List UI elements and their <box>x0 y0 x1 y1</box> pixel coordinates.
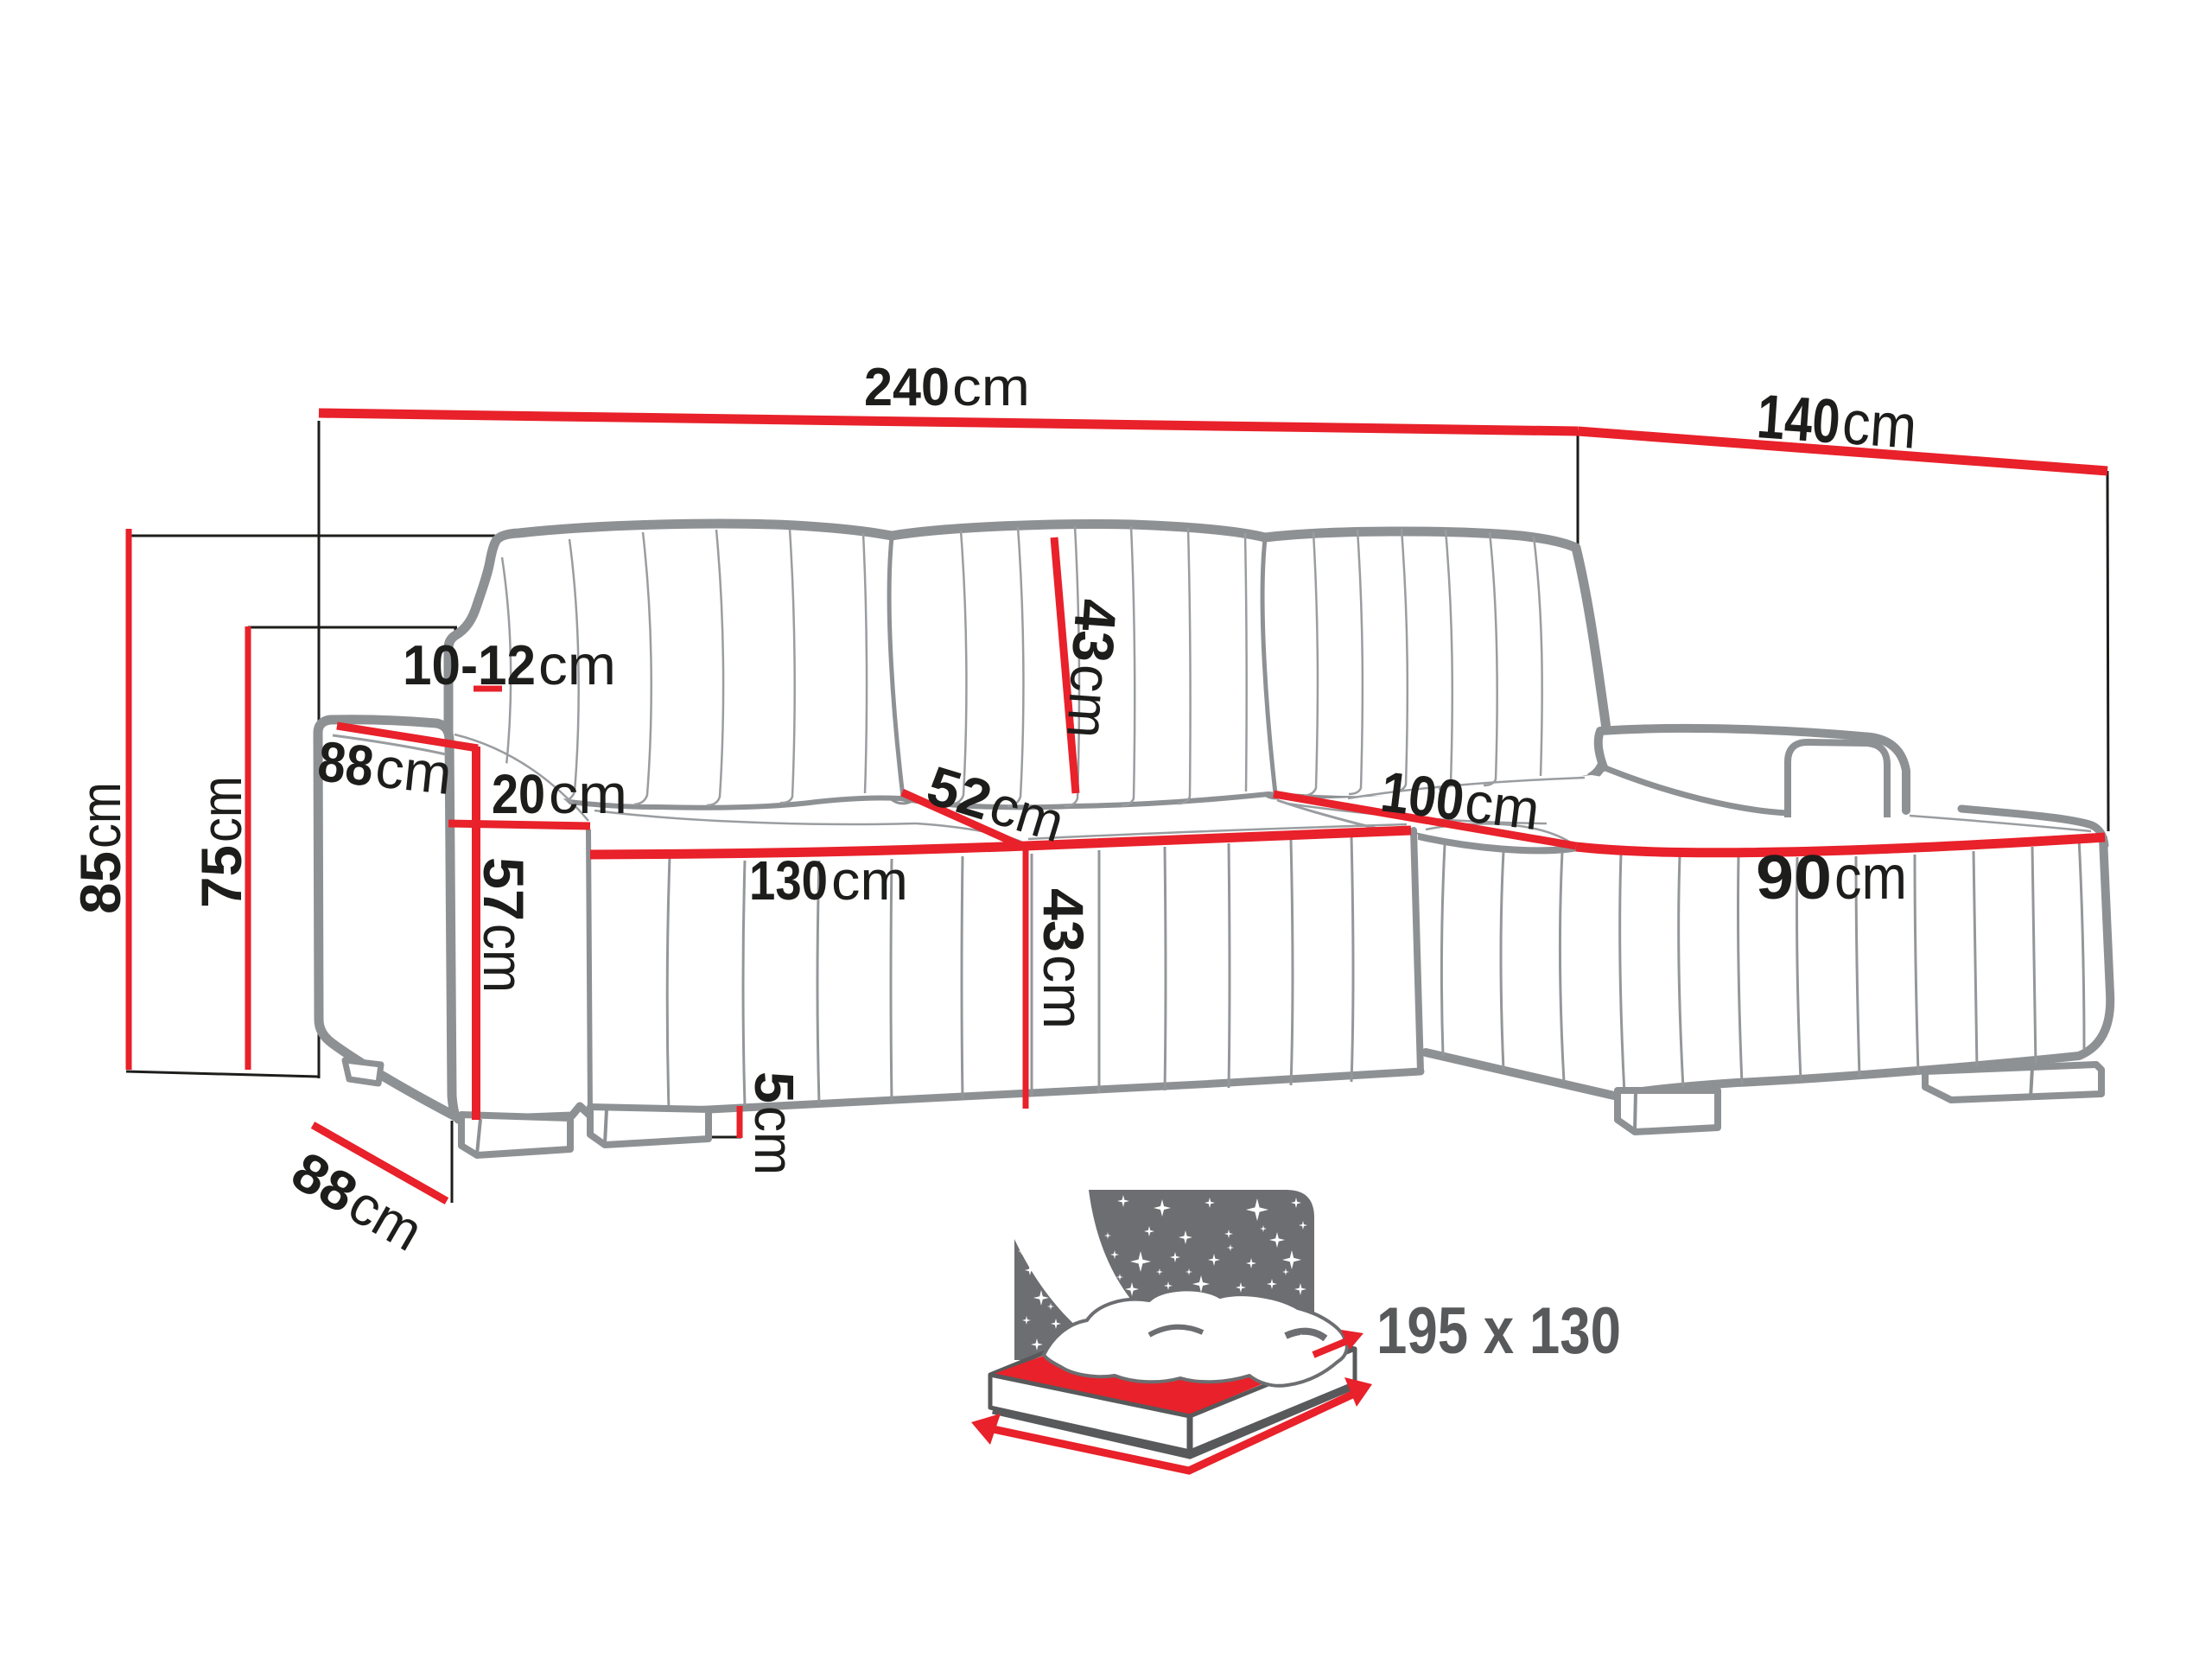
svg-text:57cm: 57cm <box>472 857 536 993</box>
svg-text:20cm: 20cm <box>492 763 627 825</box>
svg-text:43cm: 43cm <box>1054 597 1128 741</box>
svg-text:140cm: 140cm <box>1755 382 1919 462</box>
svg-text:90cm: 90cm <box>1756 843 1907 912</box>
svg-text:43cm: 43cm <box>1032 888 1096 1029</box>
svg-text:240cm: 240cm <box>864 358 1030 417</box>
svg-text:10-12cm: 10-12cm <box>403 633 616 696</box>
svg-text:5cm: 5cm <box>743 1071 805 1175</box>
svg-text:75cm: 75cm <box>189 776 253 908</box>
svg-text:85cm: 85cm <box>68 782 132 914</box>
svg-text:195 x 130: 195 x 130 <box>1376 1294 1621 1368</box>
